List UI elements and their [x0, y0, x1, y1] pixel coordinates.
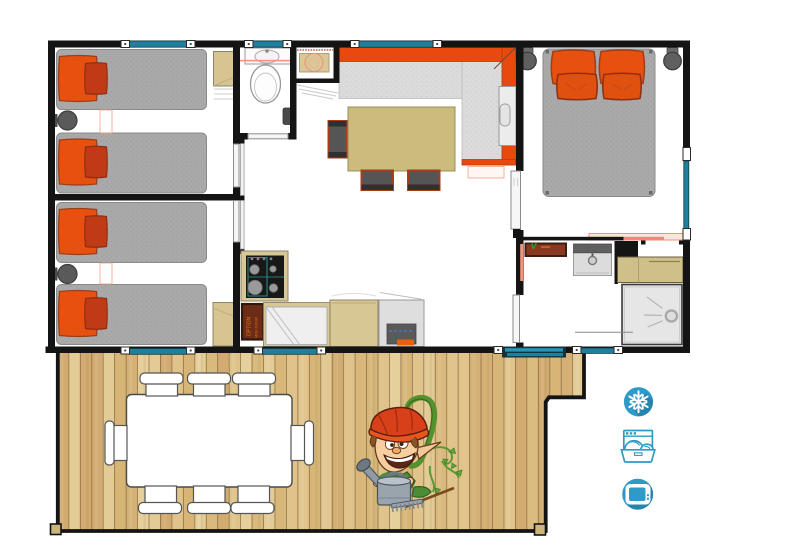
svg-text:OPTION: OPTION: [247, 316, 253, 336]
svg-text:MINI FOUR: MINI FOUR: [254, 317, 259, 338]
